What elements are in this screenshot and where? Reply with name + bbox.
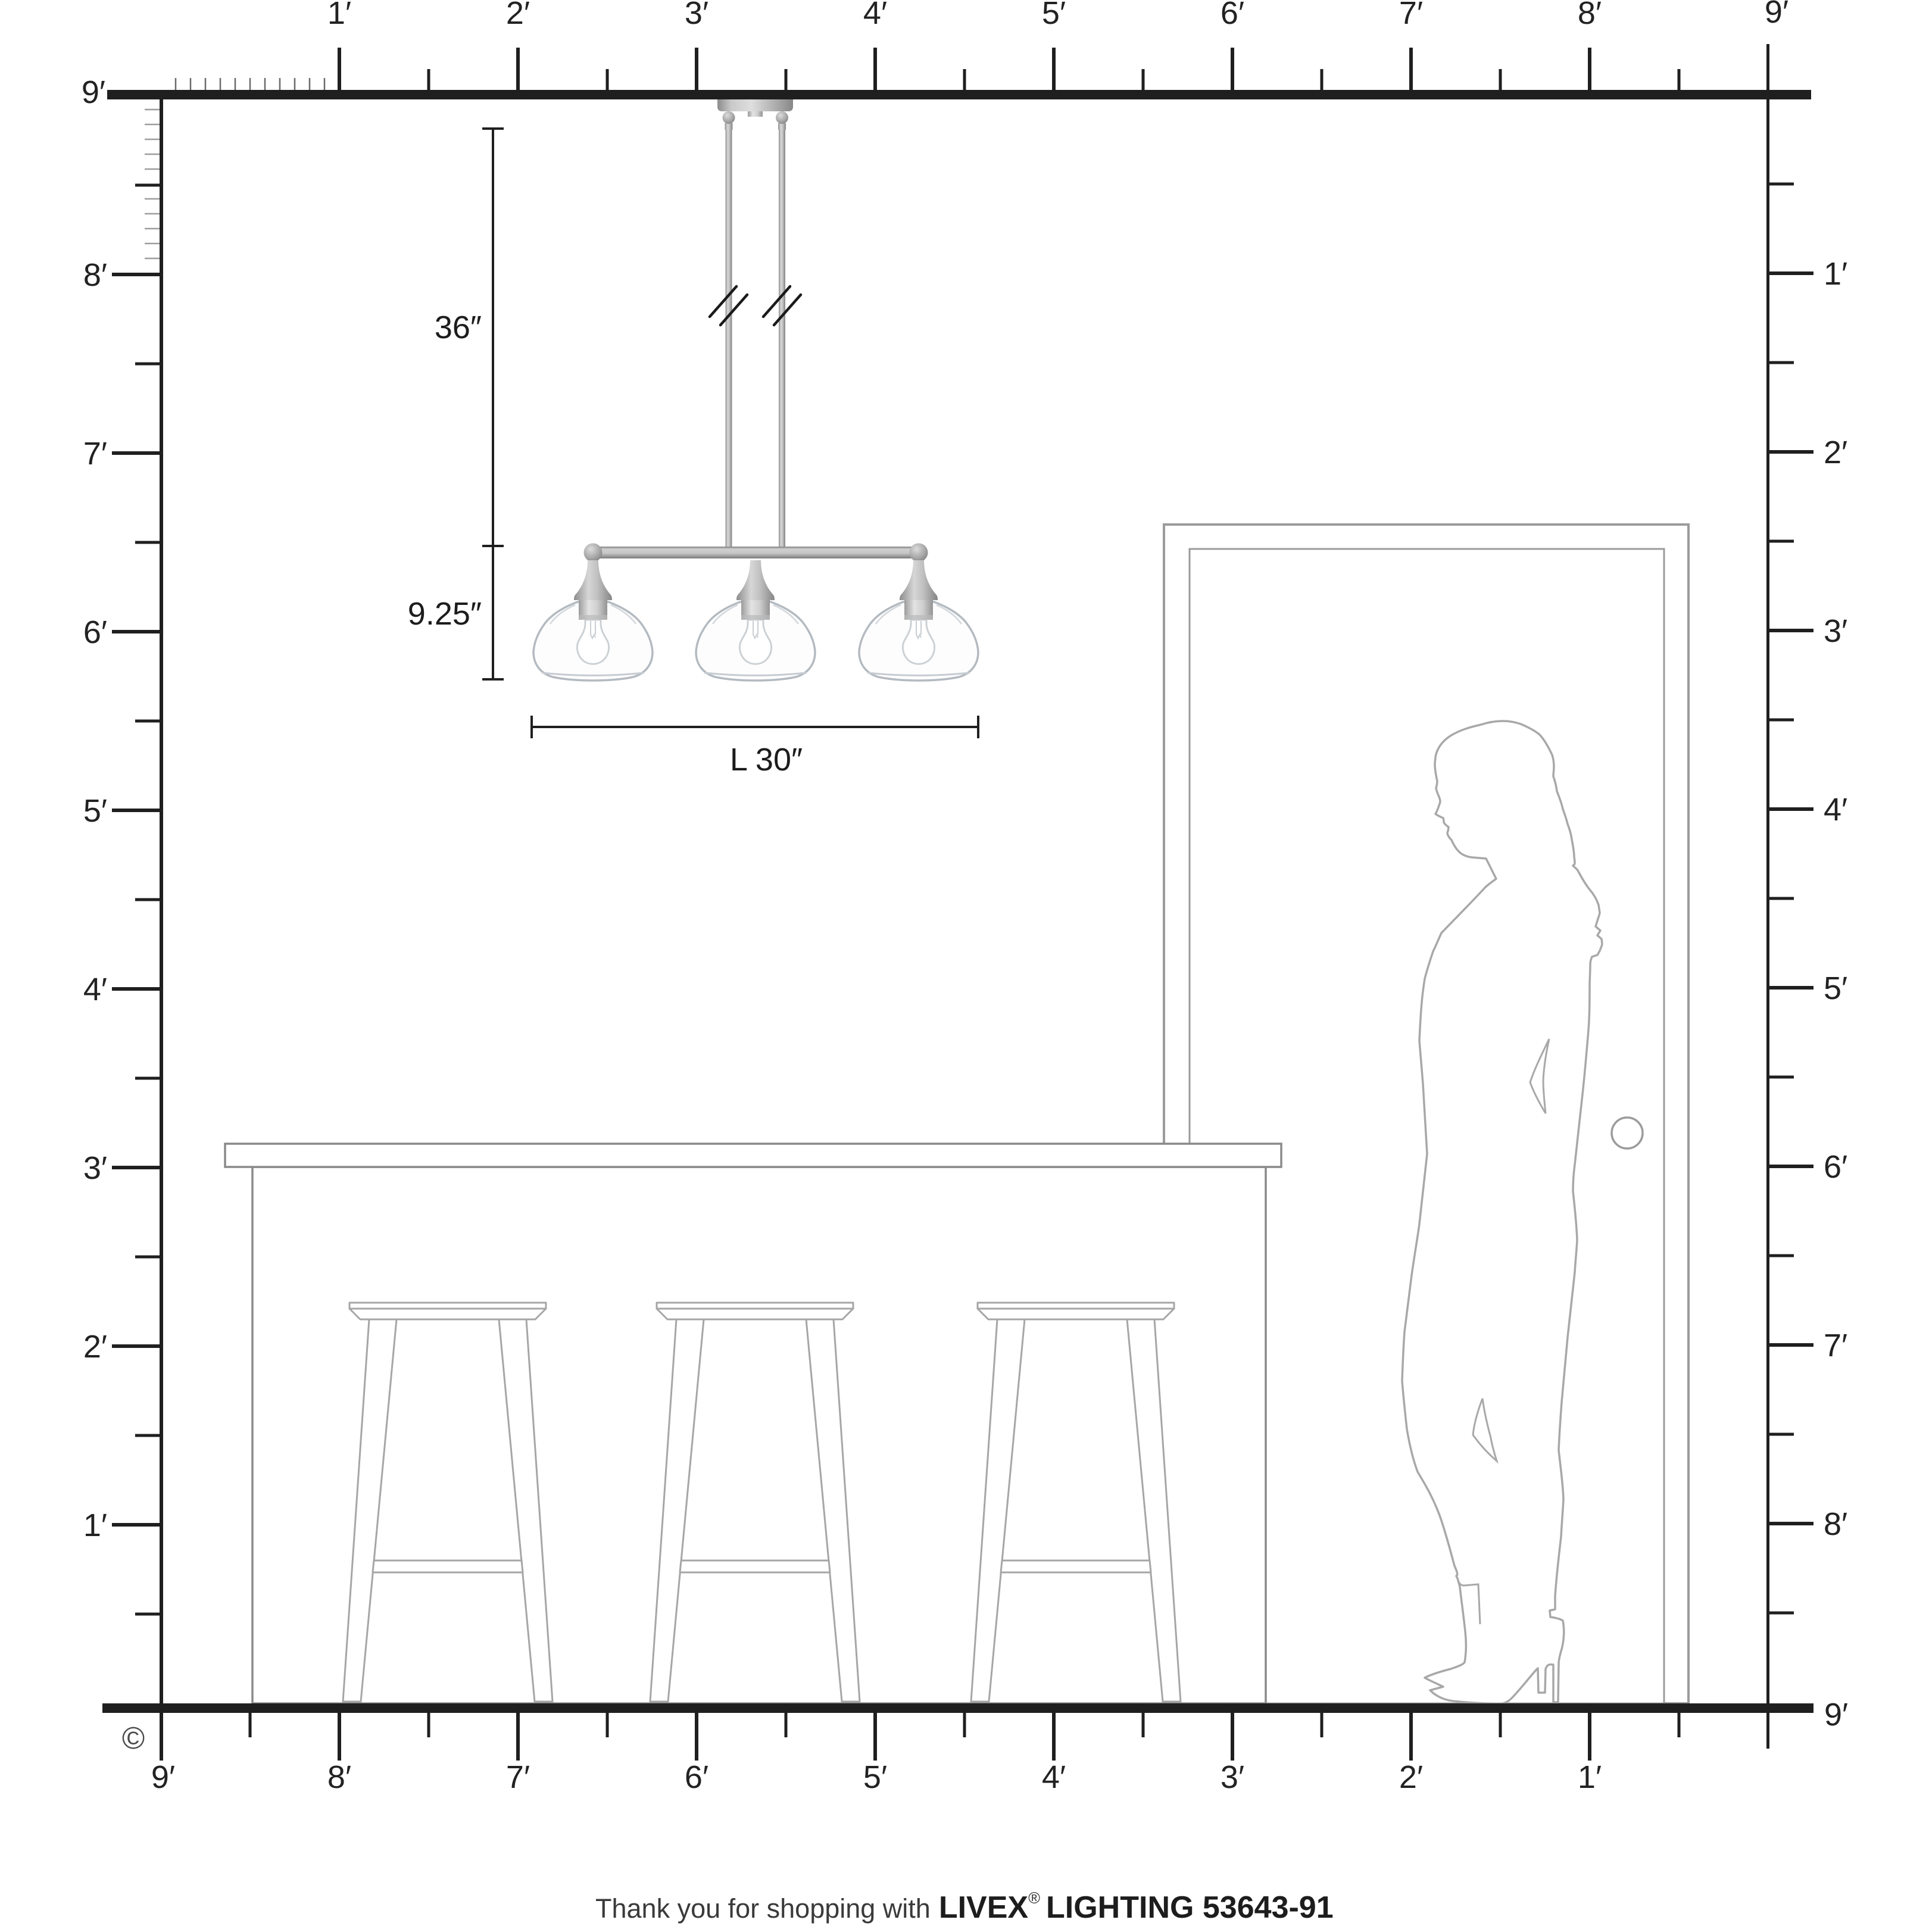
svg-text:6′: 6′ (1824, 1149, 1847, 1185)
svg-text:2′: 2′ (83, 1329, 107, 1365)
svg-text:5′: 5′ (863, 1759, 887, 1795)
svg-text:6′: 6′ (685, 1759, 708, 1795)
svg-text:36″: 36″ (435, 310, 482, 345)
svg-text:3′: 3′ (1824, 613, 1847, 649)
svg-text:8′: 8′ (83, 257, 107, 293)
svg-text:9.25″: 9.25″ (408, 596, 482, 632)
svg-text:2′: 2′ (1824, 435, 1847, 470)
svg-text:Thank you for shopping withLIV: Thank you for shopping withLIVEX®LIGHTIN… (595, 1889, 1334, 1925)
svg-text:7′: 7′ (506, 1759, 530, 1795)
svg-text:L 30″: L 30″ (730, 742, 803, 778)
svg-text:5′: 5′ (83, 793, 107, 829)
svg-text:4′: 4′ (863, 0, 887, 31)
svg-text:1′: 1′ (1578, 1759, 1602, 1795)
svg-text:2′: 2′ (1399, 1759, 1423, 1795)
svg-text:1′: 1′ (83, 1507, 107, 1543)
svg-text:9′: 9′ (151, 1759, 175, 1795)
svg-text:3′: 3′ (685, 0, 708, 31)
svg-text:6′: 6′ (1221, 0, 1244, 31)
svg-text:9′: 9′ (82, 74, 105, 110)
svg-text:7′: 7′ (1399, 0, 1423, 31)
svg-text:4′: 4′ (83, 972, 107, 1007)
svg-text:©: © (122, 1721, 145, 1756)
svg-text:8′: 8′ (327, 1759, 351, 1795)
svg-text:5′: 5′ (1824, 970, 1847, 1006)
svg-text:7′: 7′ (83, 436, 107, 472)
svg-text:1′: 1′ (327, 0, 351, 31)
svg-text:2′: 2′ (506, 0, 530, 31)
svg-text:3′: 3′ (83, 1150, 107, 1186)
svg-text:1′: 1′ (1824, 256, 1847, 292)
svg-text:4′: 4′ (1824, 792, 1847, 828)
svg-text:5′: 5′ (1042, 0, 1066, 31)
svg-text:9′: 9′ (1824, 1697, 1848, 1733)
svg-text:8′: 8′ (1824, 1506, 1847, 1542)
svg-text:3′: 3′ (1221, 1759, 1244, 1795)
svg-text:7′: 7′ (1824, 1328, 1847, 1363)
svg-text:8′: 8′ (1578, 0, 1602, 31)
svg-text:9′: 9′ (1765, 0, 1788, 30)
svg-text:6′: 6′ (83, 614, 107, 650)
svg-text:4′: 4′ (1042, 1759, 1066, 1795)
